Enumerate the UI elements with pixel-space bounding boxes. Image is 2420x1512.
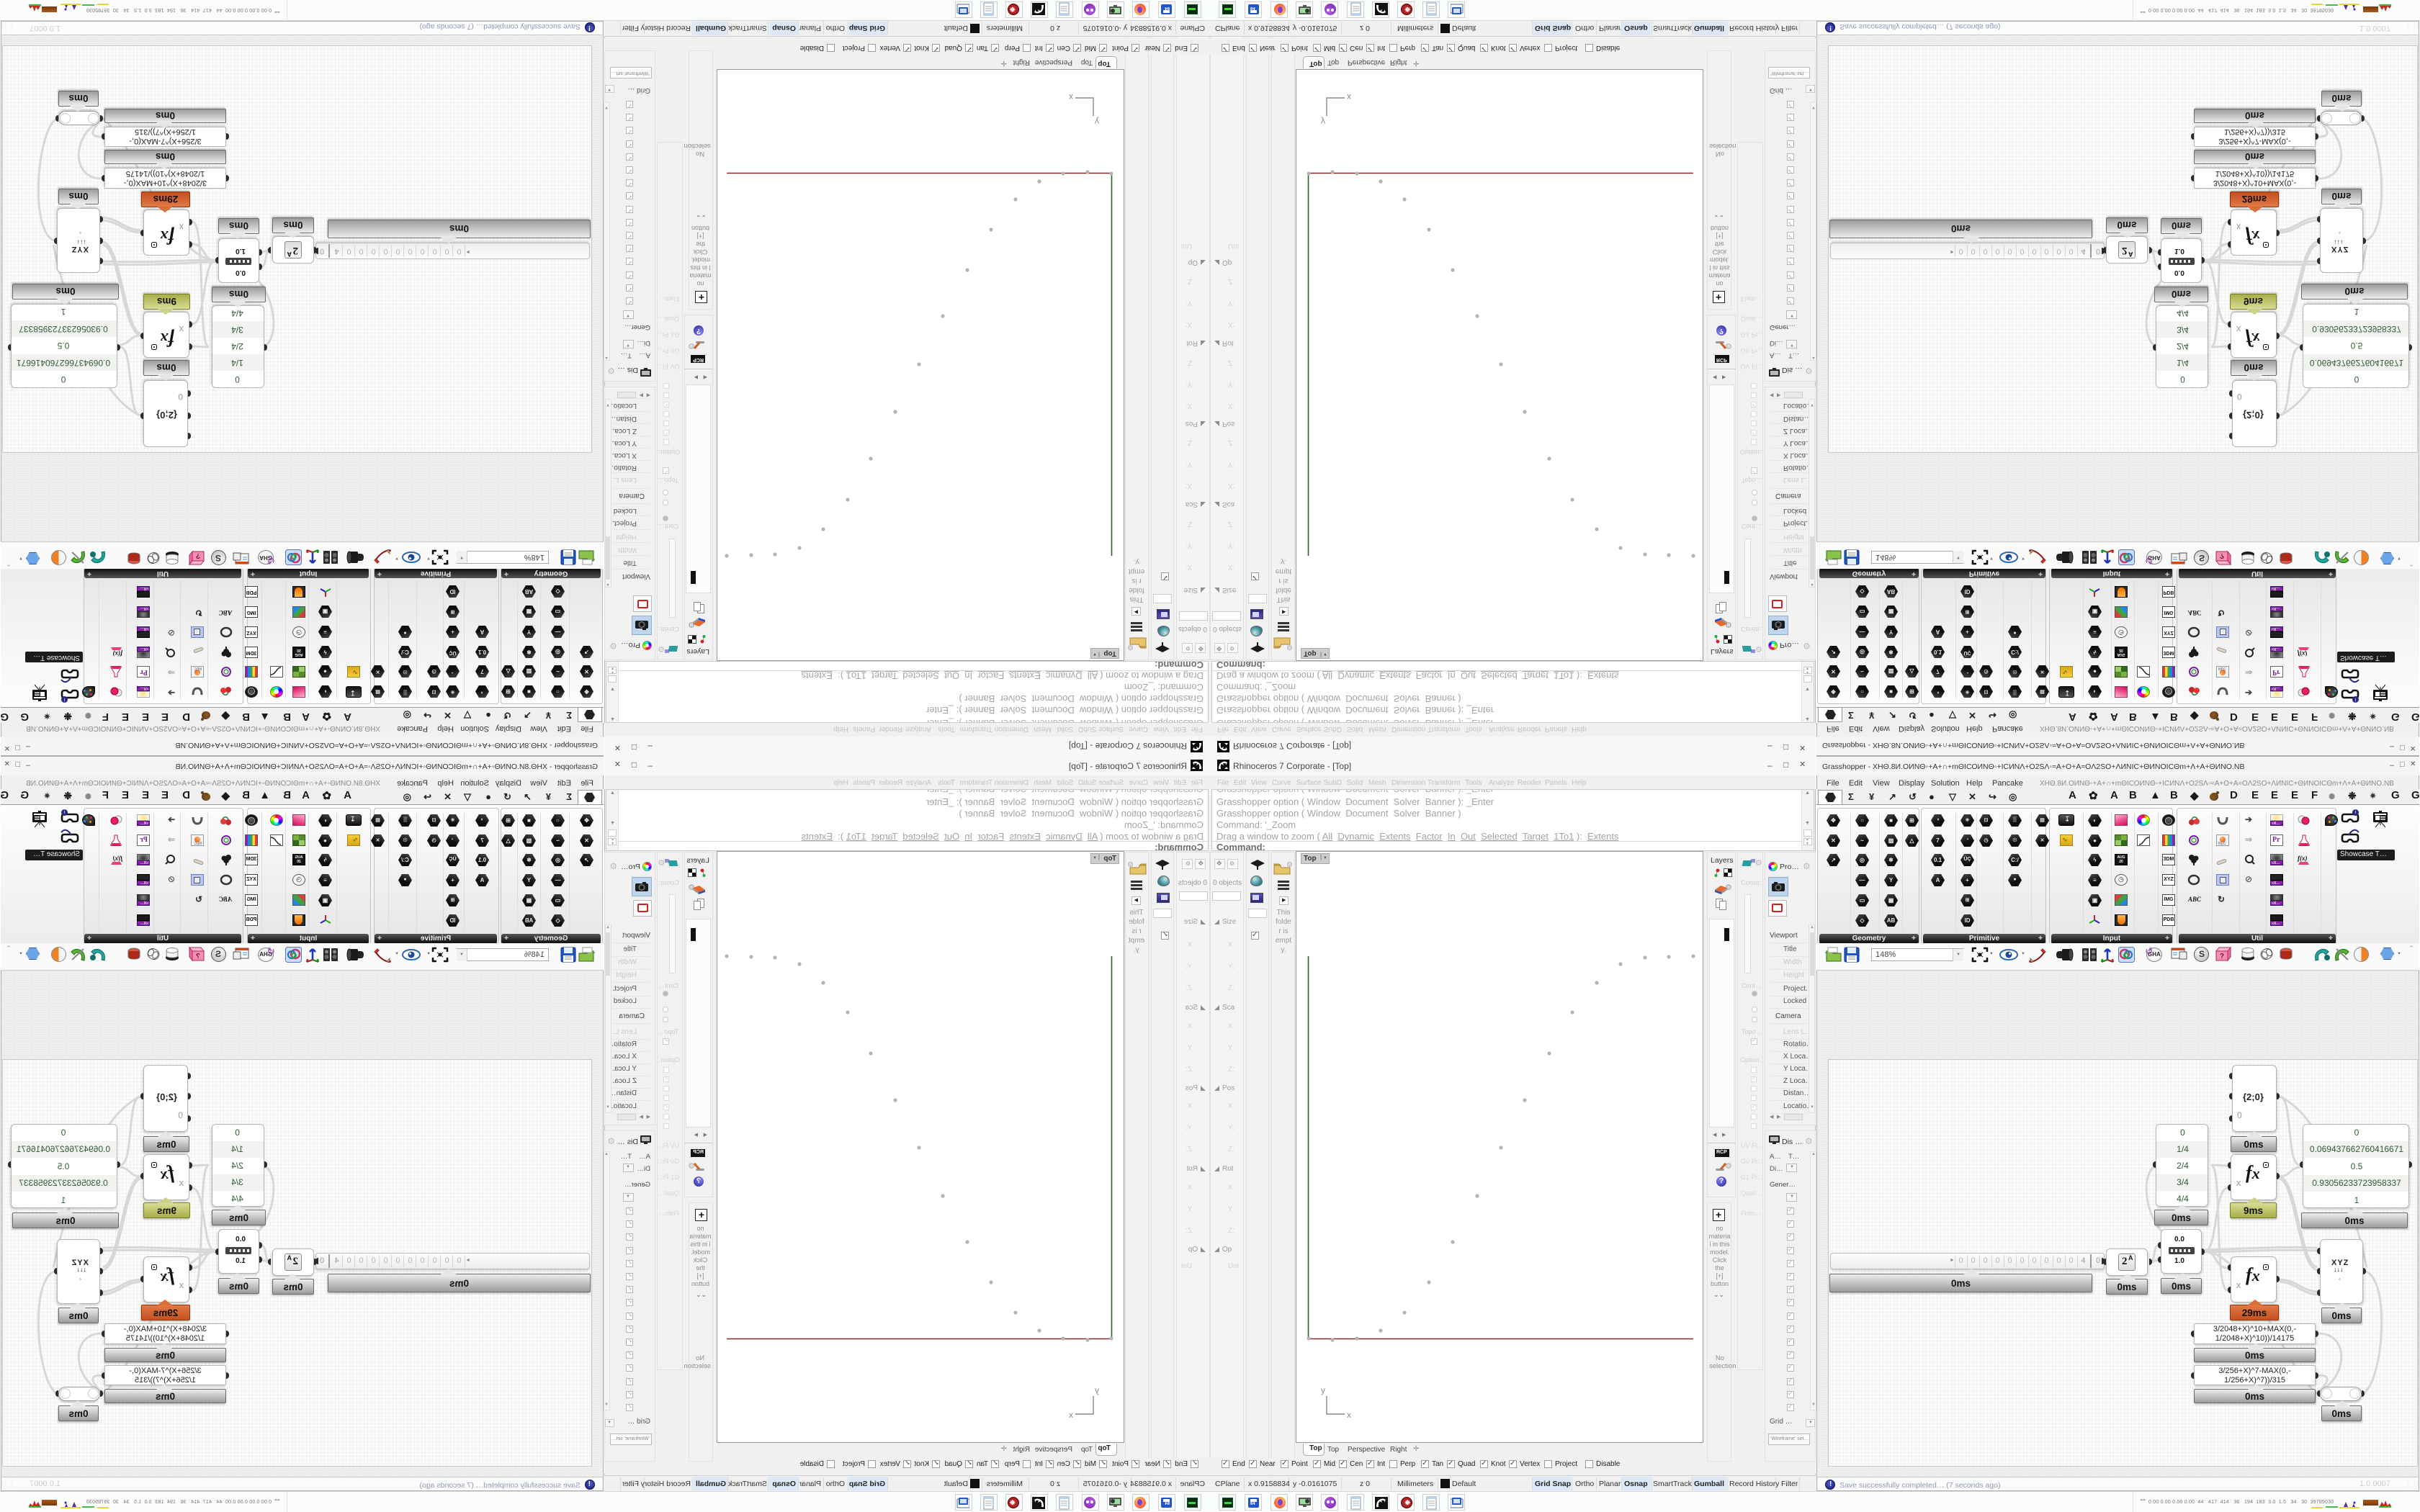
svg-text:?: ? <box>2220 953 2224 960</box>
svg-text:y: y <box>1095 1385 1099 1395</box>
svg-text:x: x <box>1069 92 1073 102</box>
svg-text:?: ? <box>2220 552 2224 559</box>
svg-text:x: x <box>1347 1410 1351 1420</box>
svg-text:?: ? <box>196 552 200 559</box>
svg-text:x: x <box>1069 1410 1073 1420</box>
svg-text:?: ? <box>196 953 200 960</box>
svg-text:y: y <box>1321 1385 1325 1395</box>
svg-text:y: y <box>1095 117 1099 127</box>
svg-text:x: x <box>1347 92 1351 102</box>
svg-text:y: y <box>1321 117 1325 127</box>
